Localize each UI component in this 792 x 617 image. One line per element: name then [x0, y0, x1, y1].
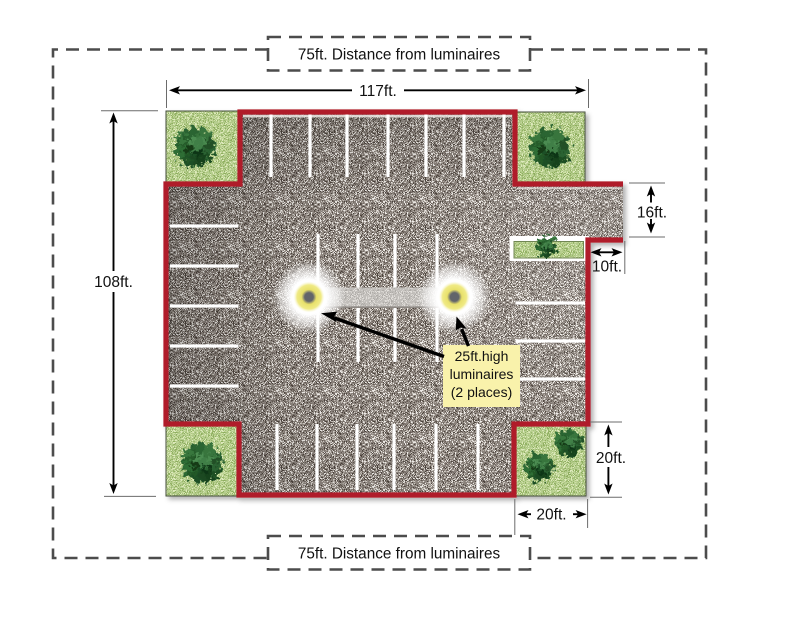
svg-text:25ft.high: 25ft.high	[455, 348, 509, 364]
svg-text:117ft.: 117ft.	[359, 83, 397, 100]
svg-text:10ft.: 10ft.	[592, 259, 622, 276]
svg-text:20ft.: 20ft.	[536, 507, 566, 524]
svg-text:16ft.: 16ft.	[637, 205, 667, 222]
svg-text:(2 places): (2 places)	[451, 384, 512, 400]
svg-text:20ft.: 20ft.	[596, 450, 626, 467]
svg-text:75ft. Distance from luminaires: 75ft. Distance from luminaires	[298, 47, 501, 64]
svg-text:108ft.: 108ft.	[94, 274, 133, 291]
svg-text:75ft. Distance from luminaires: 75ft. Distance from luminaires	[298, 546, 501, 563]
svg-text:luminaires: luminaires	[450, 366, 514, 382]
